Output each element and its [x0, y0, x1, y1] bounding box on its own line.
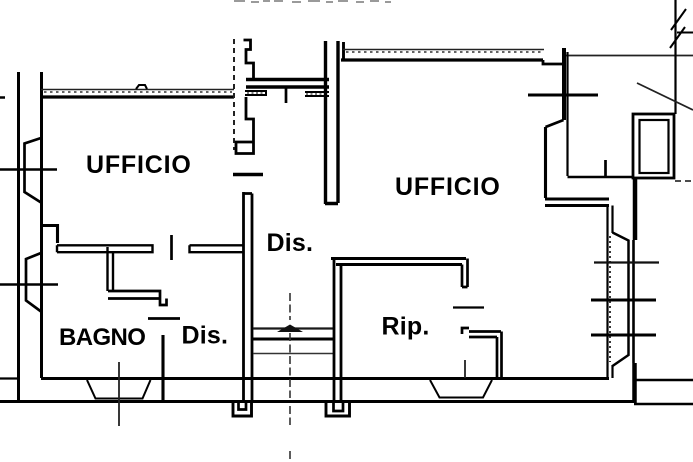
svg-text:Rip.: Rip. — [382, 313, 430, 341]
svg-text:UFFICIO: UFFICIO — [395, 173, 501, 201]
svg-text:UFFICIO: UFFICIO — [86, 151, 192, 179]
svg-text:Dis.: Dis. — [182, 322, 229, 350]
svg-text:BAGNO: BAGNO — [59, 324, 145, 351]
svg-text:Dis.: Dis. — [267, 229, 314, 257]
